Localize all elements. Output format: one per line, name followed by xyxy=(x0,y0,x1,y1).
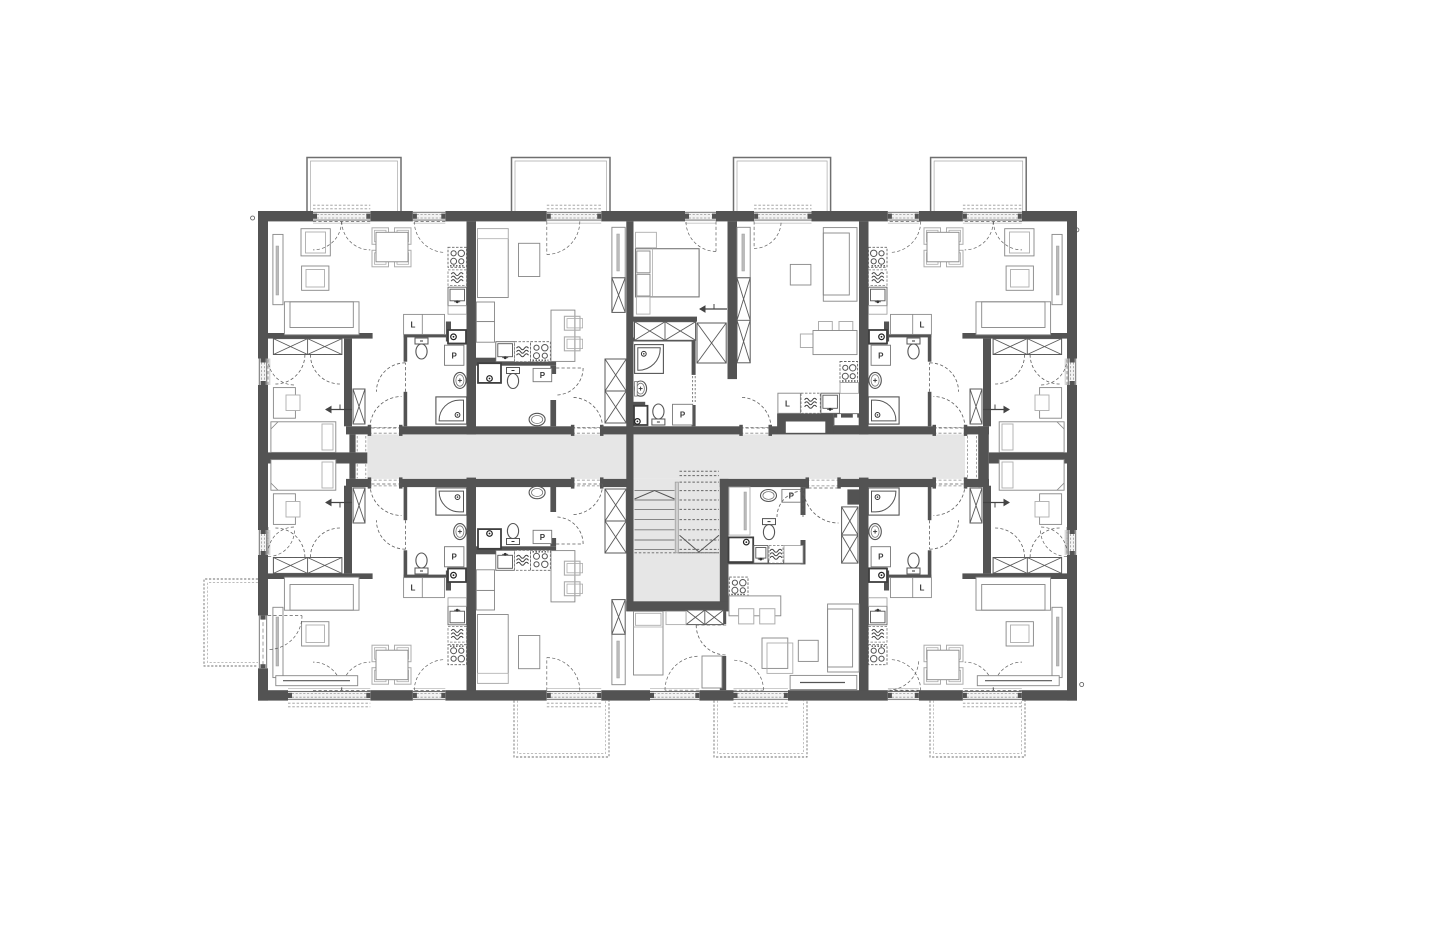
svg-text:P: P xyxy=(878,352,884,361)
svg-text:P: P xyxy=(789,491,795,500)
svg-text:P: P xyxy=(878,553,884,562)
svg-text:P: P xyxy=(540,371,546,380)
svg-text:P: P xyxy=(540,533,546,542)
svg-text:L: L xyxy=(920,584,925,593)
svg-text:P: P xyxy=(452,553,458,562)
svg-text:P: P xyxy=(680,411,686,420)
svg-text:L: L xyxy=(920,321,925,330)
svg-text:P: P xyxy=(452,352,458,361)
svg-text:L: L xyxy=(411,584,416,593)
svg-text:L: L xyxy=(411,321,416,330)
svg-text:L: L xyxy=(785,400,790,409)
